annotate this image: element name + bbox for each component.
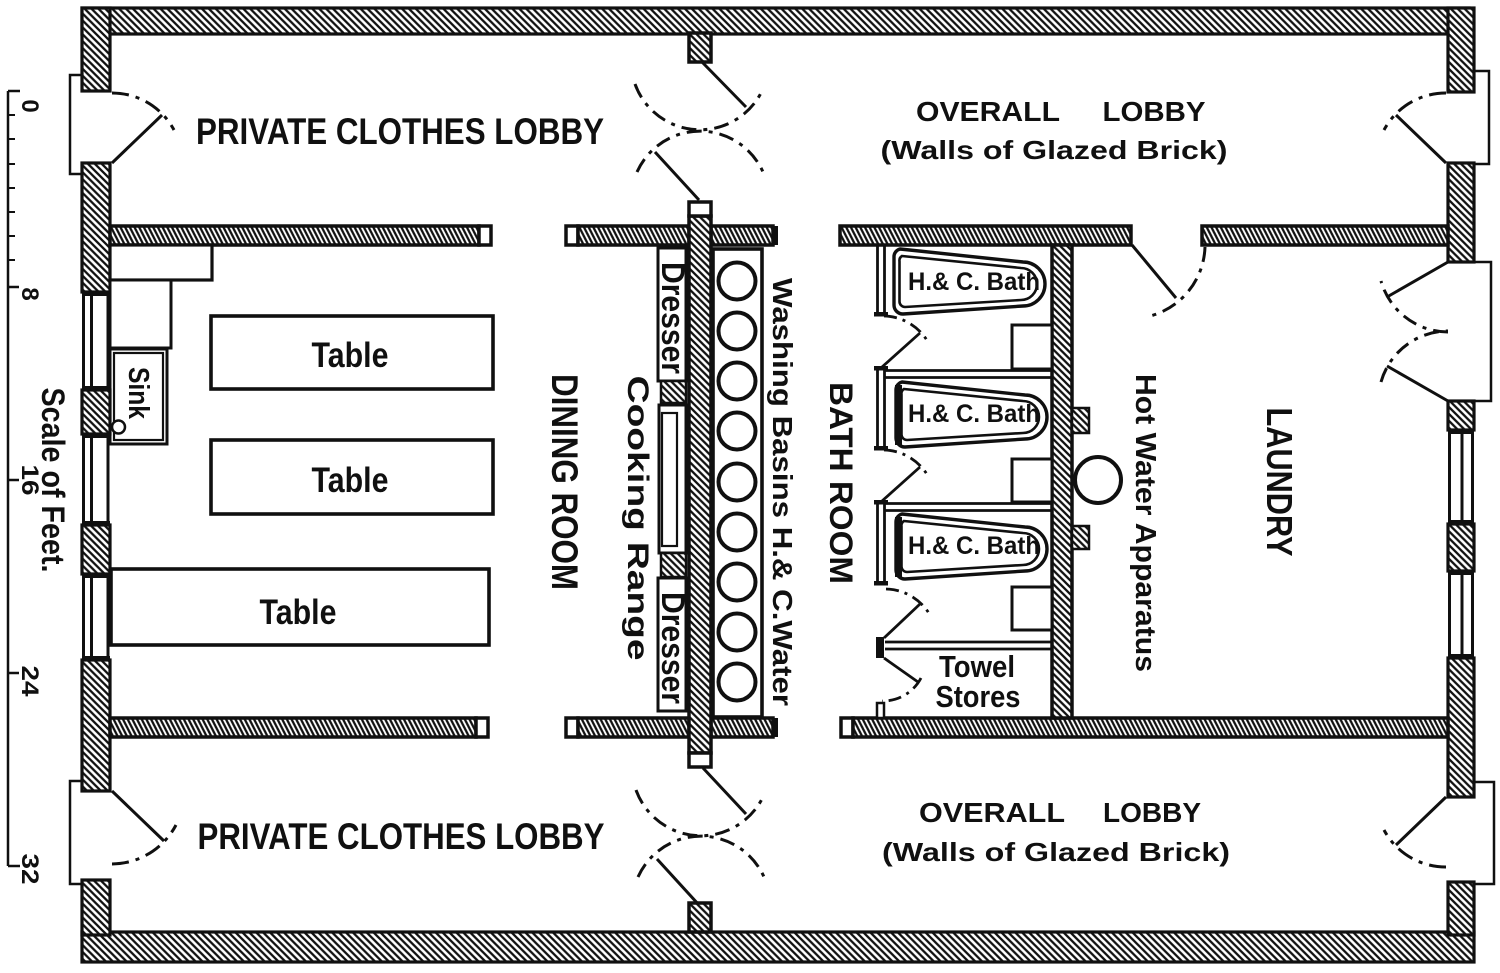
svg-text:(Walls of Glazed Brick): (Walls of Glazed Brick) [881, 135, 1228, 165]
svg-text:Washing Basins H.& C.Water: Washing Basins H.& C.Water [767, 278, 798, 706]
svg-text:8: 8 [16, 287, 43, 300]
svg-text:Cooking Range: Cooking Range [621, 376, 654, 661]
svg-text:Table: Table [312, 336, 389, 375]
svg-text:OVERALL: OVERALL [916, 96, 1060, 127]
svg-text:OVERALL: OVERALL [919, 797, 1065, 828]
svg-text:Table: Table [312, 461, 389, 500]
svg-text:LOBBY: LOBBY [1103, 797, 1201, 828]
svg-text:Sink: Sink [122, 367, 154, 420]
svg-text:0: 0 [16, 99, 43, 112]
svg-text:Dresser: Dresser [655, 262, 691, 374]
svg-text:Stores: Stores [936, 679, 1021, 714]
svg-text:BATH ROOM: BATH ROOM [823, 382, 859, 584]
svg-text:PRIVATE CLOTHES LOBBY: PRIVATE CLOTHES LOBBY [198, 816, 605, 857]
svg-text:(Walls of Glazed Brick): (Walls of Glazed Brick) [882, 837, 1230, 867]
svg-text:H.& C. Bath: H.& C. Bath [908, 268, 1040, 296]
svg-text:PRIVATE CLOTHES LOBBY: PRIVATE CLOTHES LOBBY [196, 111, 604, 152]
svg-text:H.& C. Bath: H.& C. Bath [908, 400, 1040, 428]
svg-text:H.& C. Bath: H.& C. Bath [908, 532, 1040, 560]
svg-text:32: 32 [16, 854, 43, 885]
svg-text:Dresser: Dresser [655, 592, 691, 704]
svg-text:LAUNDRY: LAUNDRY [1259, 408, 1300, 557]
svg-text:Table: Table [260, 593, 337, 632]
svg-text:Scale of Feet.: Scale of Feet. [35, 388, 71, 573]
svg-text:24: 24 [16, 666, 43, 698]
svg-text:LOBBY: LOBBY [1103, 96, 1206, 127]
svg-text:Hot Water Apparatus: Hot Water Apparatus [1129, 374, 1161, 672]
svg-text:DINING ROOM: DINING ROOM [544, 374, 585, 590]
